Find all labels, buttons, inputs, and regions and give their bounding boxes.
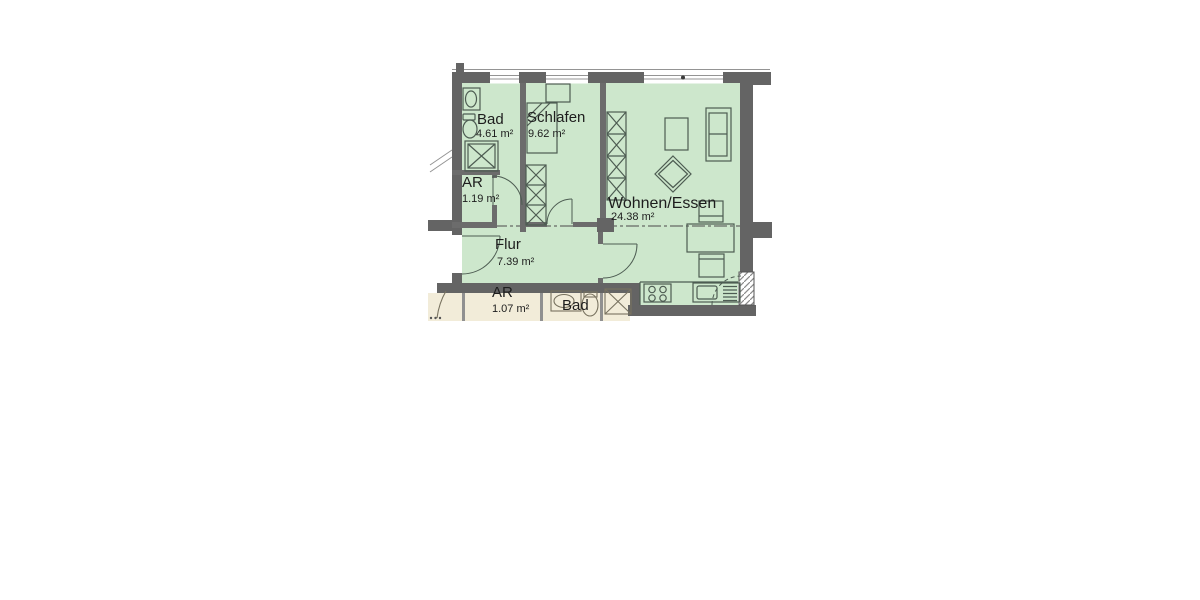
page: { "plan": { "rooms": { "bad": {"name": "… — [0, 0, 1200, 600]
room-label-ar: AR — [462, 175, 483, 190]
room-label-ar2: AR — [492, 285, 513, 300]
cutoff-dots — [430, 317, 441, 319]
floor-plan: Bad 4.61 m² Schlafen 9.62 m² AR 1.19 m² … — [428, 58, 780, 321]
room-area-flur: 7.39 m² — [497, 257, 534, 268]
window-schlafen — [546, 72, 588, 84]
room-label-schlafen: Schlafen — [527, 110, 585, 125]
window-bad — [490, 72, 519, 84]
room-label-wohnen: Wohnen/Essen — [608, 196, 716, 212]
room-area-ar2: 1.07 m² — [492, 304, 529, 315]
window-wohnen — [644, 72, 723, 84]
room-area-wohnen: 24.38 m² — [611, 212, 654, 223]
room-area-schlafen: 9.62 m² — [528, 129, 565, 140]
reference-lines — [430, 150, 452, 172]
shaft-hatched — [739, 272, 754, 305]
room-label-flur: Flur — [495, 237, 521, 252]
room-label-bad: Bad — [477, 112, 504, 127]
room-label-bad2: Bad — [562, 298, 589, 313]
room-area-bad: 4.61 m² — [476, 129, 513, 140]
room-area-ar: 1.19 m² — [462, 194, 499, 205]
